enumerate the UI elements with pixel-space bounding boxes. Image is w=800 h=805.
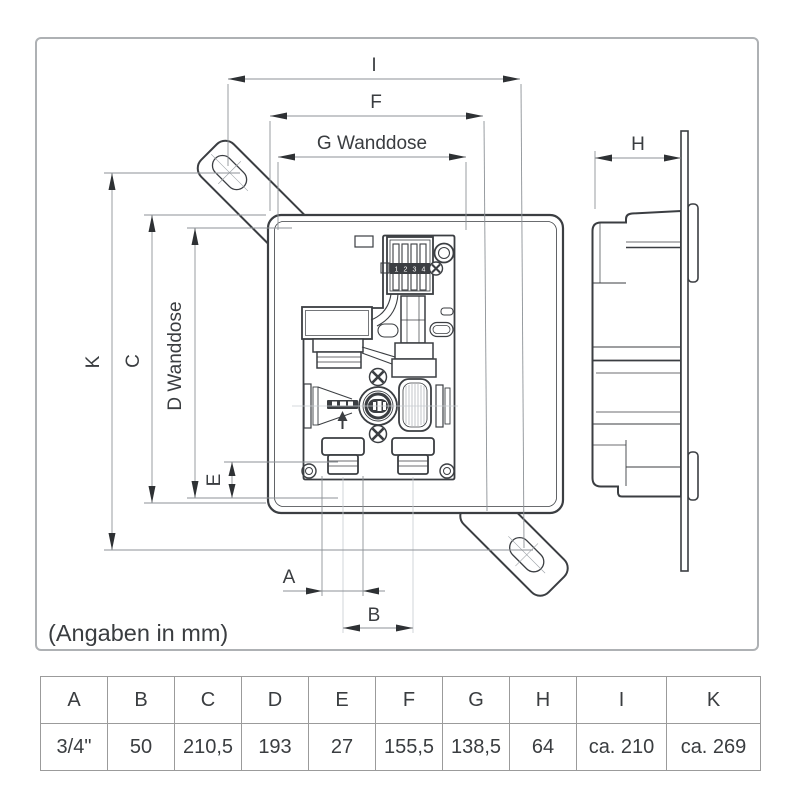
table-header-row: A B C D E F G H I K: [41, 677, 761, 724]
terminal-screw-icon: [430, 262, 443, 275]
side-view: [593, 131, 699, 571]
cable-hole: [435, 244, 454, 263]
side-body: [593, 211, 682, 497]
table-header: C: [175, 677, 242, 724]
table-header: H: [510, 677, 577, 724]
valve-stem-tube: [401, 296, 425, 343]
table-value: 3/4": [41, 724, 108, 771]
table-value: ca. 210: [577, 724, 667, 771]
table-value: 138,5: [443, 724, 510, 771]
dim-label-A: A: [283, 567, 296, 588]
table-value: 64: [510, 724, 577, 771]
front-view: 1 2 3 4: [193, 136, 573, 601]
connection-port-right: [392, 438, 434, 474]
dim-label-K: K: [83, 355, 104, 368]
dimension-drawing-sheet: 1 2 3 4: [0, 0, 800, 800]
table-header: B: [108, 677, 175, 724]
mounting-plate: [681, 131, 688, 571]
table-header: I: [577, 677, 667, 724]
dim-label-C: C: [123, 354, 144, 368]
table-value: 27: [309, 724, 376, 771]
terminal-number: 2: [404, 267, 408, 274]
table-value: 193: [242, 724, 309, 771]
dim-label-E: E: [204, 474, 225, 487]
table-value-row: 3/4" 50 210,5 193 27 155,5 138,5 64 ca. …: [41, 724, 761, 771]
filter-cartridge: [399, 379, 431, 431]
table-header: G: [443, 677, 510, 724]
table-header: K: [667, 677, 761, 724]
side-tab-top: [688, 204, 698, 282]
valve-screw-top-icon: [370, 369, 387, 386]
dim-label-G: G Wanddose: [317, 133, 427, 154]
table-header: F: [376, 677, 443, 724]
terminal-number: 1: [395, 267, 399, 274]
terminal-number: 4: [422, 267, 426, 274]
dim-label-D: D Wanddose: [165, 301, 186, 410]
table-header: A: [41, 677, 108, 724]
dimension-table: A B C D E F G H I K 3/4" 50 210,5 193 27…: [40, 676, 761, 771]
table-value: ca. 269: [667, 724, 761, 771]
table-header: E: [309, 677, 376, 724]
dim-label-F: F: [370, 92, 382, 113]
connection-port-left: [322, 438, 364, 474]
side-tab-bottom: [688, 452, 698, 500]
table-value: 210,5: [175, 724, 242, 771]
valve-screw-bottom-icon: [370, 426, 387, 443]
terminal-number: 3: [413, 267, 417, 274]
table-value: 155,5: [376, 724, 443, 771]
dim-label-I: I: [371, 55, 376, 76]
dim-label-B: B: [368, 605, 381, 626]
dim-label-H: H: [631, 134, 645, 155]
table-header: D: [242, 677, 309, 724]
table-value: 50: [108, 724, 175, 771]
units-note: (Angaben in mm): [48, 620, 228, 646]
